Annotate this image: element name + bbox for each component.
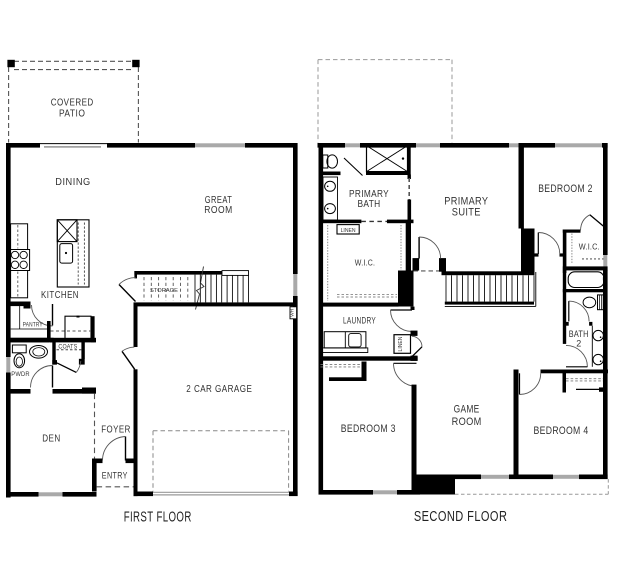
svg-text:BEDROOM 4: BEDROOM 4 — [534, 425, 589, 437]
svg-text:BEDROOM 3: BEDROOM 3 — [341, 423, 396, 435]
svg-text:KITCHEN: KITCHEN — [41, 289, 79, 301]
svg-text:PATIO: PATIO — [59, 108, 86, 120]
svg-text:LINEN: LINEN — [341, 228, 356, 234]
svg-text:LAUNDRY: LAUNDRY — [343, 316, 376, 327]
svg-text:PWDR: PWDR — [11, 371, 30, 378]
svg-text:2: 2 — [576, 339, 581, 349]
svg-text:SECOND FLOOR: SECOND FLOOR — [414, 509, 508, 525]
svg-text:SUITE: SUITE — [452, 207, 481, 219]
svg-text:ROOM: ROOM — [452, 416, 482, 428]
svg-text:FIRST FLOOR: FIRST FLOOR — [124, 509, 192, 525]
svg-text:GAME: GAME — [454, 404, 480, 416]
svg-text:STORAGE: STORAGE — [150, 288, 178, 294]
svg-text:W.I.C.: W.I.C. — [579, 243, 600, 252]
svg-text:BEDROOM 2: BEDROOM 2 — [538, 183, 593, 195]
svg-text:WH: WH — [290, 309, 295, 317]
svg-text:DINING: DINING — [55, 176, 91, 188]
svg-text:ROOM: ROOM — [204, 204, 233, 216]
svg-text:BATH: BATH — [569, 329, 589, 339]
svg-text:ENTRY: ENTRY — [102, 471, 128, 482]
svg-text:DEN: DEN — [42, 433, 61, 445]
svg-text:2 CAR GARAGE: 2 CAR GARAGE — [186, 383, 252, 395]
svg-text:FOYER: FOYER — [101, 423, 131, 435]
svg-text:COATS: COATS — [58, 343, 77, 350]
svg-text:LINEN: LINEN — [398, 336, 404, 351]
svg-text:PANTRY: PANTRY — [23, 322, 43, 329]
svg-text:W.I.C.: W.I.C. — [355, 258, 376, 268]
svg-text:BATH: BATH — [358, 199, 381, 210]
